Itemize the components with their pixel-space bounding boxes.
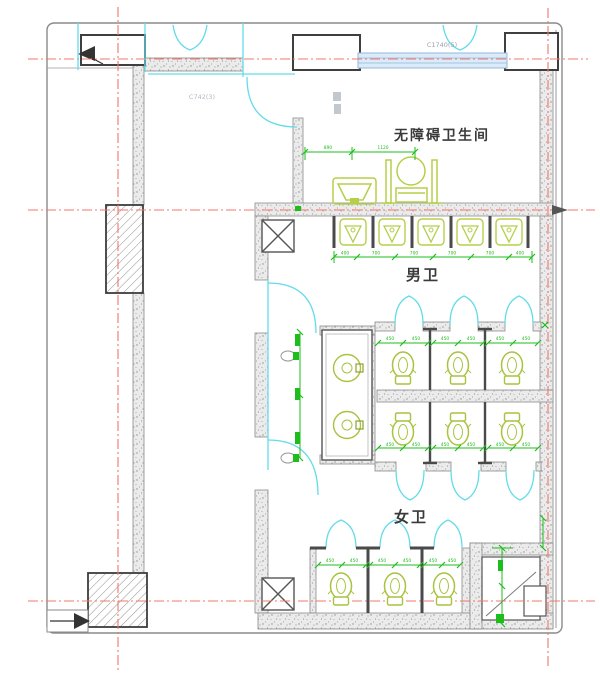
dim-label: 450 (467, 336, 476, 342)
womens-room-label: 女卫 (394, 508, 428, 526)
stall-door-arc (505, 296, 533, 324)
toilet (328, 573, 354, 605)
window-top (358, 53, 507, 68)
stall-door-arc (506, 470, 534, 500)
entry-arrows (47, 46, 103, 632)
stall-door-arc (450, 296, 478, 324)
column-xbox (262, 578, 294, 610)
dim-label: 450 (412, 442, 421, 448)
mop-room (482, 557, 546, 620)
text-labels: 无障碍卫生间 男卫 女卫 C1740(5) C742(3) 890 1120 4… (189, 41, 530, 564)
dim-label: 400 (341, 251, 350, 257)
dim-label: 450 (496, 336, 505, 342)
accessible-sink (333, 178, 376, 204)
window-tag-left: C742(3) (189, 93, 215, 101)
dim-label: 450 (326, 558, 335, 564)
dim-label: 890 (324, 145, 333, 151)
column-hatched (106, 205, 143, 293)
door-arc (247, 77, 297, 127)
urinal (418, 219, 444, 245)
toilet (445, 352, 471, 384)
doors (78, 23, 534, 548)
dim-label: 450 (522, 442, 531, 448)
accessible-room-label: 无障碍卫生间 (393, 127, 490, 144)
urinal (340, 219, 366, 245)
small-gray-tags (333, 92, 341, 114)
dim-label: 450 (378, 558, 387, 564)
door-arc (268, 283, 316, 333)
toilet (382, 573, 408, 605)
stall-door-arc (434, 520, 462, 548)
floor-plan-canvas: 无障碍卫生间 男卫 女卫 C1740(5) C742(3) 890 1120 4… (0, 0, 600, 677)
stall-door-arc (451, 470, 479, 500)
dim-label: 450 (441, 336, 450, 342)
dim-label: 450 (386, 336, 395, 342)
toilet (390, 352, 416, 384)
dim-label: 700 (410, 251, 419, 257)
dim-label: 450 (496, 442, 505, 448)
dim-label: 450 (412, 336, 421, 342)
dim-label: 450 (429, 558, 438, 564)
door-arc (268, 440, 318, 495)
dim-label: 450 (441, 442, 450, 448)
dim-label: 700 (372, 251, 381, 257)
stall-door-arc (395, 296, 423, 324)
urinal (379, 219, 405, 245)
accessible-toilet (381, 157, 443, 203)
wash-counter (322, 330, 372, 460)
dim-label: 450 (522, 336, 531, 342)
dim-label: 450 (403, 558, 412, 564)
dim-label: 1120 (377, 145, 388, 151)
urinal (457, 219, 483, 245)
floor-plan-svg: 无障碍卫生间 男卫 女卫 C1740(5) C742(3) 890 1120 4… (0, 0, 600, 677)
dim-label: 450 (386, 442, 395, 448)
stall-door-arc (396, 470, 424, 500)
double-door-icon (173, 25, 207, 50)
dim-label: 700 (486, 251, 495, 257)
toilet (431, 573, 457, 605)
toilet (390, 413, 416, 445)
section-arrow-icon (552, 205, 568, 215)
dim-label: 400 (516, 251, 525, 257)
column-hatched (88, 573, 147, 627)
toilet (499, 352, 525, 384)
toilet (499, 413, 525, 445)
column-xbox (262, 220, 294, 252)
dim-label: 450 (467, 442, 476, 448)
dim-label: 450 (448, 558, 457, 564)
mens-room-label: 男卫 (406, 266, 440, 284)
window-tag-top: C1740(5) (427, 41, 457, 49)
stall-door-arc (326, 520, 356, 548)
toilet (445, 413, 471, 445)
dim-label: 700 (448, 251, 457, 257)
urinal (496, 219, 522, 245)
dim-label: 450 (350, 558, 359, 564)
